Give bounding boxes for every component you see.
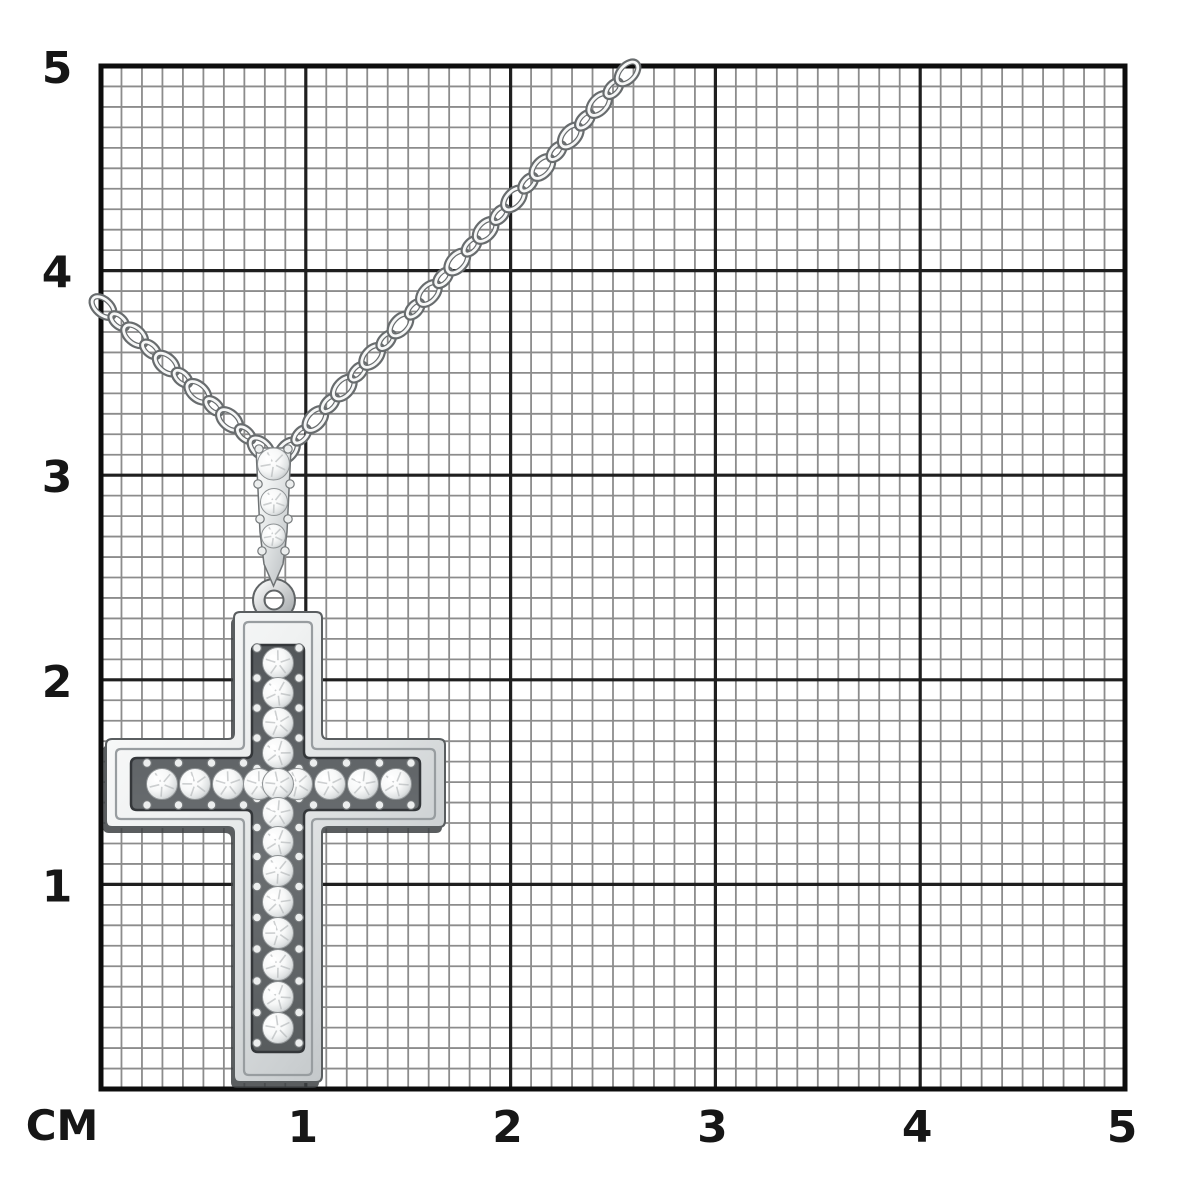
diamond-stone <box>263 827 294 858</box>
x-axis-label-5cm: 5 <box>1107 1102 1138 1153</box>
diamond-stone <box>263 918 294 949</box>
bail <box>254 445 294 586</box>
scene-svg: 5 4 3 2 1 CM 1 2 3 4 5 <box>0 0 1200 1200</box>
chain-right-strand <box>272 58 642 467</box>
unit-label-cm: CM <box>26 1101 99 1150</box>
diamond-stone <box>147 769 178 800</box>
diamond-stone <box>261 489 288 516</box>
y-axis-label-2cm: 2 <box>42 657 73 708</box>
x-axis-label-3cm: 3 <box>697 1102 728 1153</box>
diamond-stone <box>315 769 346 800</box>
diamond-stone <box>263 738 294 769</box>
cross-stones <box>147 648 412 1044</box>
diamond-stone <box>213 769 244 800</box>
diamond-stone <box>262 524 286 548</box>
y-axis-label-5cm: 5 <box>42 43 73 94</box>
y-axis-label-3cm: 3 <box>42 452 73 503</box>
y-axis-label-4cm: 4 <box>42 248 73 299</box>
x-axis-label-2cm: 2 <box>492 1102 523 1153</box>
photo-measure-canvas: 5 4 3 2 1 CM 1 2 3 4 5 <box>0 0 1200 1200</box>
diamond-stone <box>180 769 211 800</box>
x-axis-label-1cm: 1 <box>287 1102 318 1153</box>
diamond-stone <box>263 678 294 709</box>
diamond-stone <box>263 648 294 679</box>
diamond-stone <box>263 950 294 981</box>
diamond-stone <box>381 769 412 800</box>
generated-scene <box>88 58 1125 1089</box>
diamond-stone <box>263 1013 294 1044</box>
diamond-stone <box>263 887 294 918</box>
diamond-stone <box>263 708 294 739</box>
y-axis-label-1cm: 1 <box>42 861 73 912</box>
diamond-stone <box>263 798 294 829</box>
diamond-stone <box>263 982 294 1013</box>
diamond-stone <box>263 856 294 887</box>
diamond-stone <box>258 448 290 480</box>
diamond-stone <box>263 769 294 800</box>
x-axis-label-4cm: 4 <box>902 1102 933 1153</box>
diamond-stone <box>348 769 379 800</box>
cross-pendant <box>103 612 445 1088</box>
